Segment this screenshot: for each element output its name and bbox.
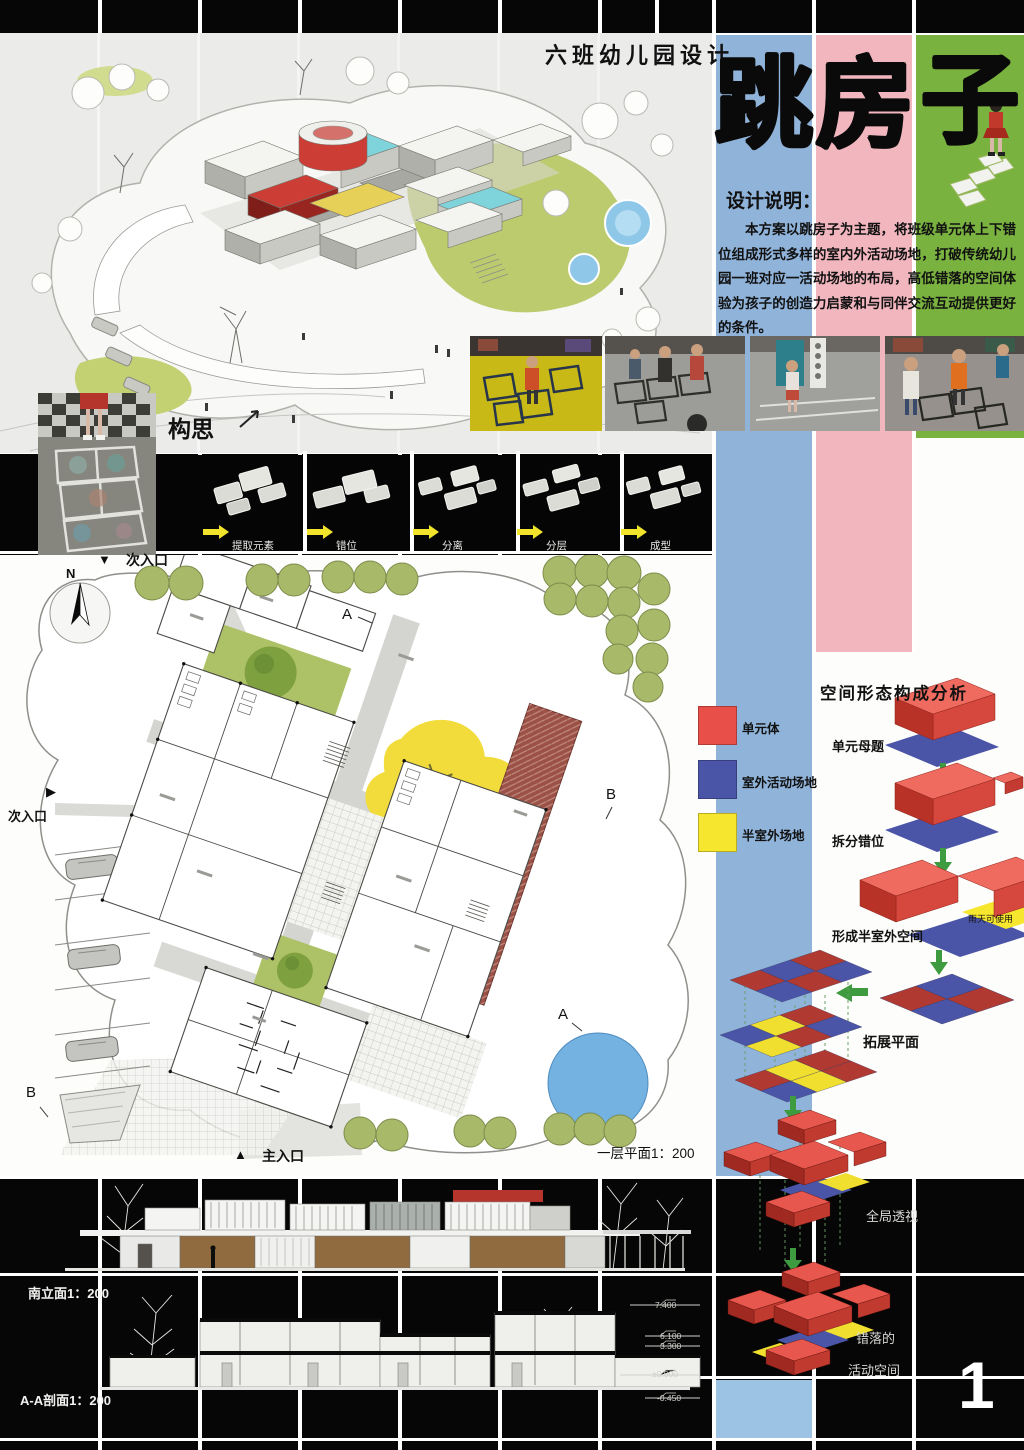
flat-checkerboard xyxy=(880,974,1014,1024)
north-arrow xyxy=(50,583,110,643)
section-mark-a-bottom: A xyxy=(558,1006,568,1023)
south-elevation xyxy=(25,1178,695,1274)
legend-label-outdoor: 室外活动场地 xyxy=(742,772,817,791)
section-mark-b-left: B xyxy=(26,1084,36,1101)
title-char-1: 跳 xyxy=(714,38,814,188)
page-number: 1 xyxy=(958,1352,995,1418)
section-caption: A-A剖面1：200 xyxy=(20,1390,111,1409)
analysis-step-4: 拓展平面 xyxy=(863,1032,919,1052)
analysis-step-1: 单元母题 xyxy=(832,736,884,755)
section-building xyxy=(110,1313,700,1387)
legend-swatch-unit xyxy=(698,706,737,745)
entrance-top-triangle-icon: ▼ xyxy=(98,552,111,567)
site-plan xyxy=(0,555,712,1176)
upper-floor xyxy=(145,1200,570,1230)
legend-label-semi: 半室外场地 xyxy=(742,825,805,844)
analysis-step-6-line-2: 活动空间 xyxy=(848,1360,900,1379)
photo-1 xyxy=(470,336,602,431)
legend-swatch-semi xyxy=(698,813,737,852)
section-mark-a-top: A xyxy=(342,606,352,623)
plan-caption: 一层平面1：200 xyxy=(597,1142,695,1162)
photo-3 xyxy=(750,336,880,431)
analysis-step-3: 形成半室外空间 xyxy=(832,926,923,945)
entrance-main-label: 主入口 xyxy=(262,1146,304,1166)
level-mark: -0.450 xyxy=(657,1393,681,1403)
entrance-left-label: 次入口 xyxy=(8,806,47,825)
grid-line-v xyxy=(655,0,659,33)
lower-floor xyxy=(120,1236,605,1268)
entrance-top-label: 次入口 xyxy=(126,550,168,570)
entrance-left-triangle-icon: ▶ xyxy=(46,784,56,800)
concept-heading: 构思 xyxy=(168,410,214,444)
section-mark-b-right: B xyxy=(606,786,616,803)
elevation-caption: 南立面1：200 xyxy=(28,1283,109,1302)
title-char-2: 房 xyxy=(816,38,912,188)
reference-photos xyxy=(470,336,1024,431)
analysis-step-5: 全局透视 xyxy=(866,1206,918,1225)
concept-arrow-icon xyxy=(238,405,264,429)
analysis-step-2: 拆分错位 xyxy=(832,831,884,850)
analysis-rain-note: 雨天可使用 xyxy=(968,912,1013,925)
design-notes-heading: 设计说明： xyxy=(726,186,821,213)
design-notes-body: 本方案以跳房子为主题，将班级单元体上下错位组成形式多样的室内外活动场地，打破传统… xyxy=(718,218,1016,341)
level-mark: 7.400 xyxy=(655,1300,676,1310)
legend-swatch-outdoor xyxy=(698,760,737,799)
photo-4 xyxy=(885,336,1024,431)
analysis-title: 空间形态构成分析 xyxy=(820,680,968,704)
concept-step-label: 错位 xyxy=(336,538,357,553)
concept-step-label: 提取元素 xyxy=(232,538,274,553)
legend-label-unit: 单元体 xyxy=(742,718,780,737)
level-mark: 3.300 xyxy=(660,1341,681,1351)
photo-2 xyxy=(605,336,745,431)
hopscotch-photo xyxy=(38,393,156,555)
north-label: N xyxy=(66,566,75,581)
presentation-board: 提取元素 错位 分离 分层 成型 xyxy=(0,0,1024,1450)
analysis-step-6-line-1: 错落的 xyxy=(856,1328,895,1347)
title-char-3: 子 xyxy=(916,34,1024,184)
concept-step-label: 分离 xyxy=(442,538,463,553)
concept-step-label: 分层 xyxy=(546,538,567,553)
entrance-main-triangle-icon: ▲ xyxy=(234,1147,247,1162)
axon-cluster-1 xyxy=(724,1110,886,1270)
level-mark: ±0.000 xyxy=(652,1369,678,1379)
section-drawing xyxy=(60,1295,720,1420)
stacked-planes xyxy=(720,950,877,1102)
concept-models xyxy=(197,455,712,551)
project-subtitle: 六班幼儿园设计 xyxy=(545,38,734,70)
clay-model xyxy=(203,463,287,539)
axon-cluster-2 xyxy=(728,1262,890,1375)
concept-step-label: 成型 xyxy=(650,538,671,553)
white-fill-right xyxy=(916,438,1024,654)
level-mark: 6.100 xyxy=(660,1331,681,1341)
